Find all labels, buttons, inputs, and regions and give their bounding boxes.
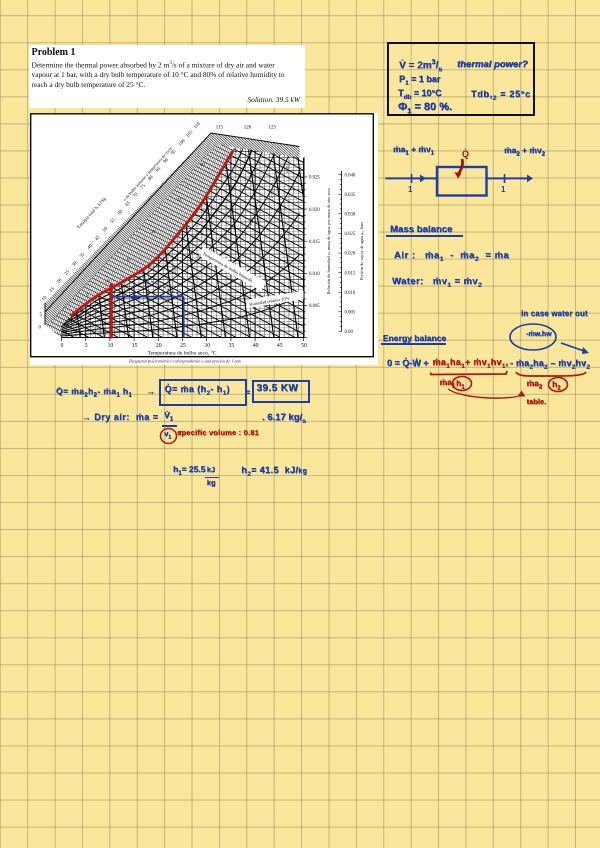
svg-text:65: 65 — [124, 200, 131, 207]
svg-text:0.010: 0.010 — [344, 291, 355, 296]
svg-text:25: 25 — [180, 343, 186, 349]
svg-text:100: 100 — [178, 138, 187, 147]
svg-text:0.93: 0.93 — [284, 165, 290, 173]
svg-text:1: 1 — [408, 185, 413, 194]
svg-text:0.005: 0.005 — [309, 304, 320, 309]
svg-text:0: 0 — [60, 343, 63, 349]
svg-text:Diagrama psicrométrico corresp: Diagrama psicrométrico correspondiente a… — [128, 359, 241, 364]
svg-text:120: 120 — [243, 126, 251, 131]
svg-text:20': 20' — [151, 229, 156, 234]
svg-text:35: 35 — [228, 343, 234, 349]
svg-text:15: 15 — [131, 343, 137, 349]
svg-text:115: 115 — [215, 126, 223, 131]
svg-text:0.030: 0.030 — [344, 213, 355, 218]
svg-text:Relación de humedad ω, masa de: Relación de humedad ω, masa de agua por … — [326, 187, 332, 295]
svg-text:0.005: 0.005 — [344, 311, 355, 316]
svg-text:0.85: 0.85 — [196, 253, 202, 261]
svg-text:0.87: 0.87 — [222, 235, 228, 243]
svg-text:55: 55 — [109, 218, 116, 225]
svg-text:125: 125 — [268, 126, 276, 131]
svg-text:40: 40 — [86, 243, 93, 250]
svg-text:25': 25' — [177, 197, 182, 202]
svg-text:50: 50 — [102, 226, 109, 233]
svg-text:0.89: 0.89 — [248, 217, 254, 225]
svg-text:45: 45 — [94, 235, 101, 242]
svg-text:1: 1 — [501, 185, 506, 194]
svg-text:25: 25 — [64, 269, 71, 276]
svg-text:45: 45 — [276, 343, 282, 349]
svg-text:20: 20 — [56, 278, 63, 285]
svg-text:0: 0 — [38, 326, 41, 331]
svg-text:5': 5' — [86, 293, 89, 298]
svg-text:Q̇: Q̇ — [462, 149, 469, 159]
svg-text:15': 15' — [126, 257, 131, 262]
svg-text:0.00: 0.00 — [344, 330, 353, 335]
svg-text:Temperatura de bulbo seco, °C: Temperatura de bulbo seco, °C — [147, 350, 216, 357]
svg-text:30: 30 — [204, 343, 210, 349]
svg-text:30: 30 — [71, 261, 78, 268]
svg-text:10': 10' — [104, 279, 109, 284]
svg-text:0.015: 0.015 — [309, 240, 320, 245]
svg-text:5: 5 — [39, 313, 42, 318]
svg-text:10: 10 — [107, 343, 113, 349]
svg-text:0.035: 0.035 — [344, 193, 355, 198]
svg-text:110: 110 — [193, 121, 202, 130]
svg-text:0.020: 0.020 — [344, 252, 355, 257]
svg-text:0.025: 0.025 — [344, 232, 355, 237]
svg-text:40: 40 — [252, 343, 258, 349]
svg-text:0.83: 0.83 — [172, 265, 178, 273]
svg-text:105: 105 — [185, 130, 194, 139]
svg-text:15: 15 — [48, 286, 55, 293]
svg-text:35: 35 — [79, 252, 86, 259]
svg-text:Entalpia total h, kJ/kg: Entalpia total h, kJ/kg — [75, 196, 107, 230]
svg-text:0.020: 0.020 — [309, 208, 320, 213]
svg-text:0.015: 0.015 — [344, 271, 355, 276]
svg-text:5: 5 — [84, 343, 87, 349]
svg-text:60: 60 — [117, 209, 124, 216]
svg-text:0.040: 0.040 — [344, 173, 355, 178]
svg-text:30': 30' — [200, 162, 205, 167]
svg-text:20: 20 — [155, 343, 161, 349]
svg-text:50: 50 — [301, 343, 307, 349]
svg-text:0.025: 0.025 — [309, 176, 320, 181]
svg-text:Presión de vapor de agua pᵥ, b: Presión de vapor de agua pᵥ, bars — [359, 222, 365, 281]
svg-text:0.010: 0.010 — [309, 272, 320, 277]
